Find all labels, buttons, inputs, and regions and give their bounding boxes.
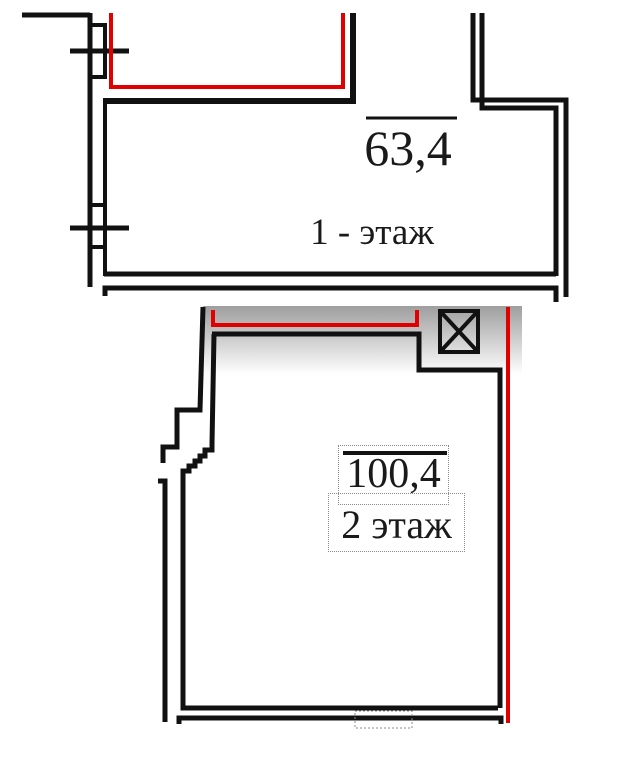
floor1-right-outer-wall — [473, 13, 566, 297]
floor1-area-value: 63,4 — [352, 122, 464, 174]
floor-plan-image: 63,4 1 - этаж 100,4 2 этаж — [0, 0, 637, 768]
floor2-area-value: 100,4 — [339, 446, 448, 495]
floor2-bottom-outer-wall — [179, 718, 501, 724]
floor2-left-outer-wall-lower — [158, 481, 165, 722]
floor1-right-inner-wall — [482, 13, 556, 276]
floor2-left-outer-wall-upper — [163, 307, 203, 463]
floor-plan-drawing — [0, 0, 637, 768]
floor2-name: 2 этаж — [329, 494, 464, 545]
floor1-bottom-outer-wall — [105, 288, 556, 302]
floor1-walls — [22, 13, 566, 302]
floor2-name-selection-box: 2 этаж — [328, 493, 465, 552]
floor1-name: 1 - этаж — [298, 213, 446, 253]
floor1-red-outline — [111, 13, 343, 87]
